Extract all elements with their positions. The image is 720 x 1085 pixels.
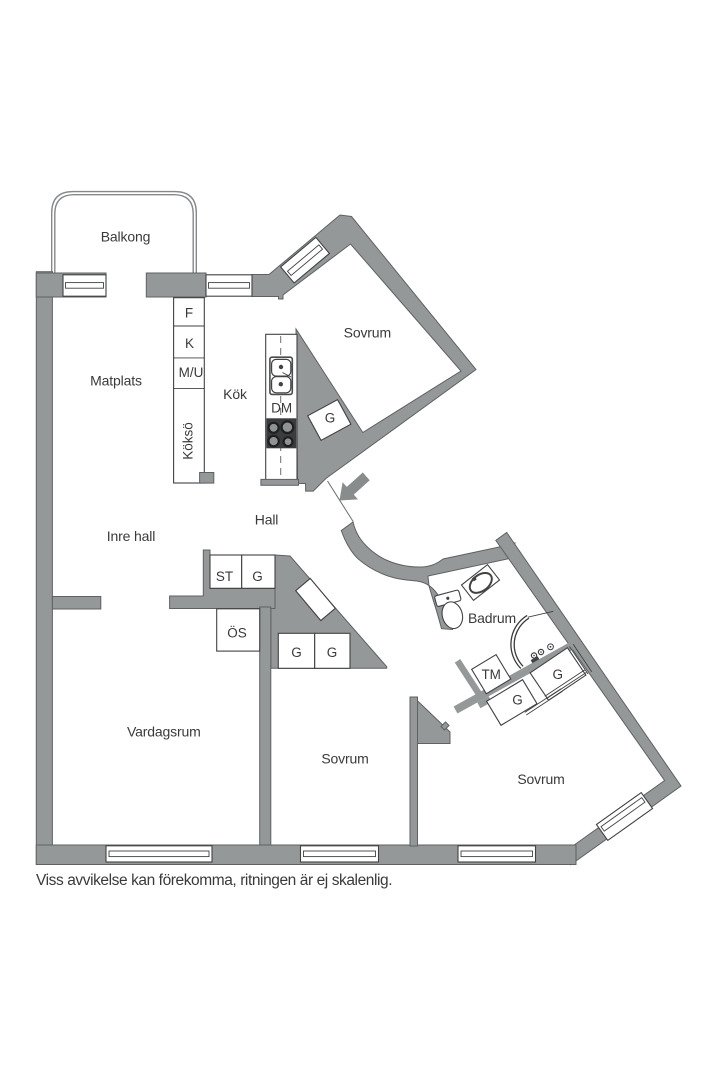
svg-text:ÖS: ÖS: [227, 626, 247, 641]
svg-text:Viss avvikelse kan förekomma,: Viss avvikelse kan förekomma, ritningen …: [36, 872, 392, 889]
svg-text:K: K: [185, 336, 194, 351]
svg-text:G: G: [552, 667, 563, 682]
svg-text:F: F: [185, 306, 193, 321]
svg-text:G: G: [291, 645, 302, 660]
svg-text:Balkong: Balkong: [101, 229, 151, 245]
svg-text:Hall: Hall: [255, 512, 279, 528]
svg-text:G: G: [252, 569, 263, 584]
svg-text:DM: DM: [271, 401, 292, 416]
svg-text:Sovrum: Sovrum: [321, 751, 368, 767]
svg-text:G: G: [325, 411, 336, 426]
svg-text:M/U: M/U: [179, 365, 204, 380]
svg-text:G: G: [327, 645, 338, 660]
svg-text:Sovrum: Sovrum: [344, 325, 391, 341]
svg-text:ST: ST: [216, 569, 233, 584]
svg-text:Badrum: Badrum: [468, 610, 516, 626]
svg-text:Köksö: Köksö: [181, 422, 196, 460]
svg-text:Vardagsrum: Vardagsrum: [127, 723, 201, 739]
svg-text:Matplats: Matplats: [90, 373, 142, 389]
svg-text:G: G: [512, 693, 523, 708]
svg-text:Inre hall: Inre hall: [107, 528, 155, 544]
svg-text:TM: TM: [481, 667, 501, 682]
svg-text:Kök: Kök: [223, 386, 248, 402]
svg-text:Sovrum: Sovrum: [517, 771, 564, 787]
